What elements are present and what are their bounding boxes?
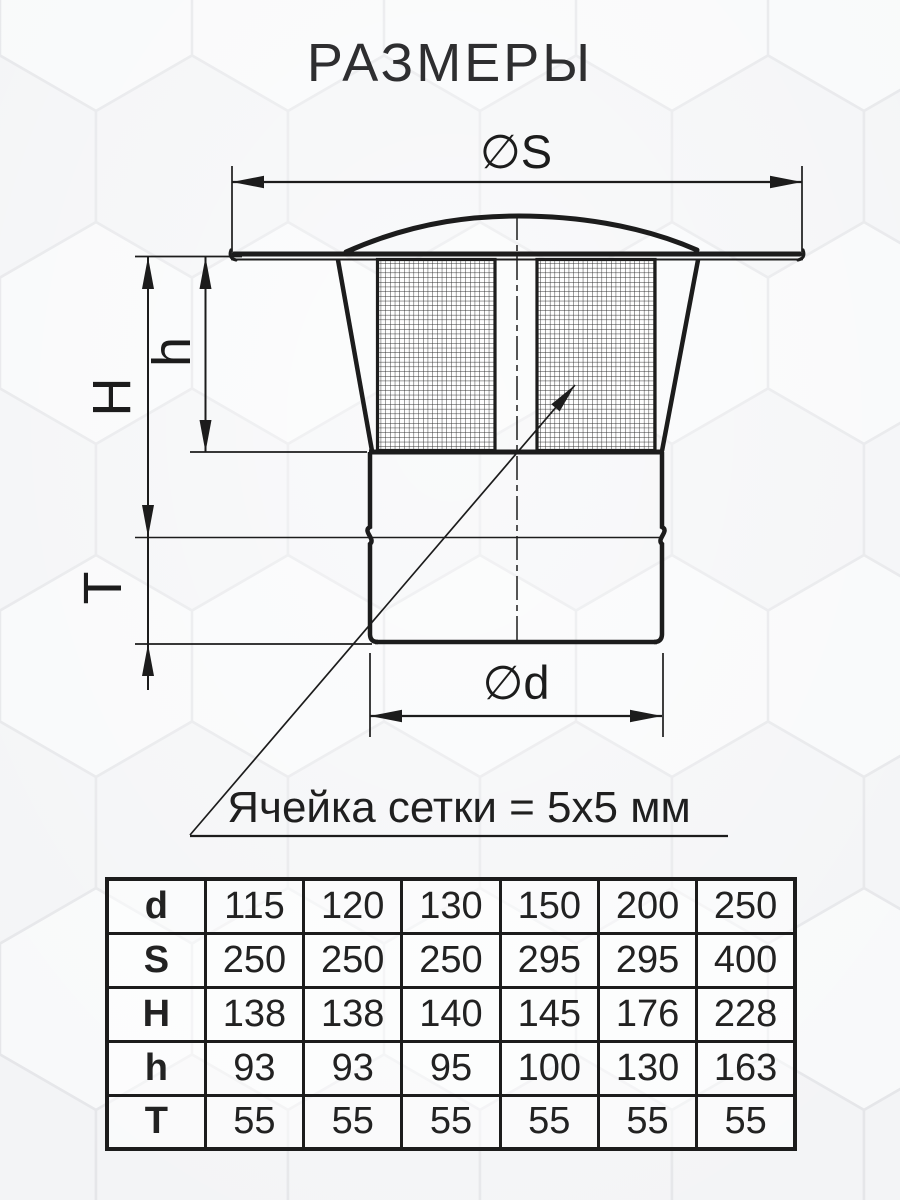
- table-row: T 55 55 55 55 55 55: [107, 1095, 795, 1149]
- mesh-note-text: Ячейка сетки = 5х5 мм: [227, 783, 690, 832]
- dim-label-phi-s: ∅S: [480, 125, 552, 178]
- arrowhead-right-icon: [630, 710, 662, 722]
- table-cell: 200: [598, 879, 696, 933]
- arrowhead-up-icon: [200, 257, 212, 289]
- table-cell: 176: [598, 987, 696, 1041]
- table-cell: 138: [205, 987, 303, 1041]
- table-cell: 93: [205, 1041, 303, 1095]
- table-cell: 250: [205, 933, 303, 987]
- table-cell: 295: [500, 933, 598, 987]
- arrowhead-left-icon: [232, 176, 264, 188]
- dimension-phi-d: ∅d: [370, 653, 663, 737]
- table-cell: 130: [402, 879, 500, 933]
- dim-label-h: h: [142, 337, 202, 367]
- table-row: h 93 93 95 100 130 163: [107, 1041, 795, 1095]
- row-label: h: [107, 1041, 205, 1095]
- page: РАЗМЕРЫ ∅S: [0, 0, 900, 1200]
- arrowhead-right-icon: [770, 176, 802, 188]
- arrowhead-up-icon: [142, 257, 154, 289]
- arrowhead-up-icon: [142, 644, 154, 676]
- table-cell: 95: [402, 1041, 500, 1095]
- table-cell: 250: [697, 879, 795, 933]
- table-cell: 140: [402, 987, 500, 1041]
- dim-label-phi-d: ∅d: [482, 656, 549, 709]
- table-cell: 55: [598, 1095, 696, 1149]
- dimensions-table: d 115 120 130 150 200 250 S 250 250 250 …: [105, 877, 797, 1151]
- pipe-body: [135, 452, 665, 642]
- page-title: РАЗМЕРЫ: [0, 36, 900, 90]
- table-cell: 250: [304, 933, 402, 987]
- table-cell: 400: [697, 933, 795, 987]
- table-cell: 55: [402, 1095, 500, 1149]
- dim-label-T: T: [73, 572, 133, 605]
- row-label: d: [107, 879, 205, 933]
- row-label: T: [107, 1095, 205, 1149]
- dimension-H-T: H T: [73, 257, 154, 690]
- table-cell: 250: [402, 933, 500, 987]
- table-cell: 138: [304, 987, 402, 1041]
- table-cell: 120: [304, 879, 402, 933]
- arrowhead-left-icon: [370, 710, 402, 722]
- table-cell: 55: [304, 1095, 402, 1149]
- table-cell: 150: [500, 879, 598, 933]
- table-cell: 55: [205, 1095, 303, 1149]
- table-cell: 228: [697, 987, 795, 1041]
- table-cell: 130: [598, 1041, 696, 1095]
- arrowhead-down-icon: [142, 505, 154, 537]
- row-label: S: [107, 933, 205, 987]
- table-cell: 145: [500, 987, 598, 1041]
- mesh-panel-left: [378, 260, 496, 451]
- table-cell: 100: [500, 1041, 598, 1095]
- table-cell: 93: [304, 1041, 402, 1095]
- mesh-panel-right: [537, 260, 655, 451]
- table-row: S 250 250 250 295 295 400: [107, 933, 795, 987]
- table-cell: 115: [205, 879, 303, 933]
- table-row: H 138 138 140 145 176 228: [107, 987, 795, 1041]
- extension-lines: [135, 257, 372, 645]
- table-row: d 115 120 130 150 200 250: [107, 879, 795, 933]
- arrowhead-down-icon: [200, 420, 212, 452]
- dim-label-H: H: [82, 378, 142, 417]
- table-cell: 163: [697, 1041, 795, 1095]
- table-cell: 295: [598, 933, 696, 987]
- table-cell: 55: [500, 1095, 598, 1149]
- table-cell: 55: [697, 1095, 795, 1149]
- row-label: H: [107, 987, 205, 1041]
